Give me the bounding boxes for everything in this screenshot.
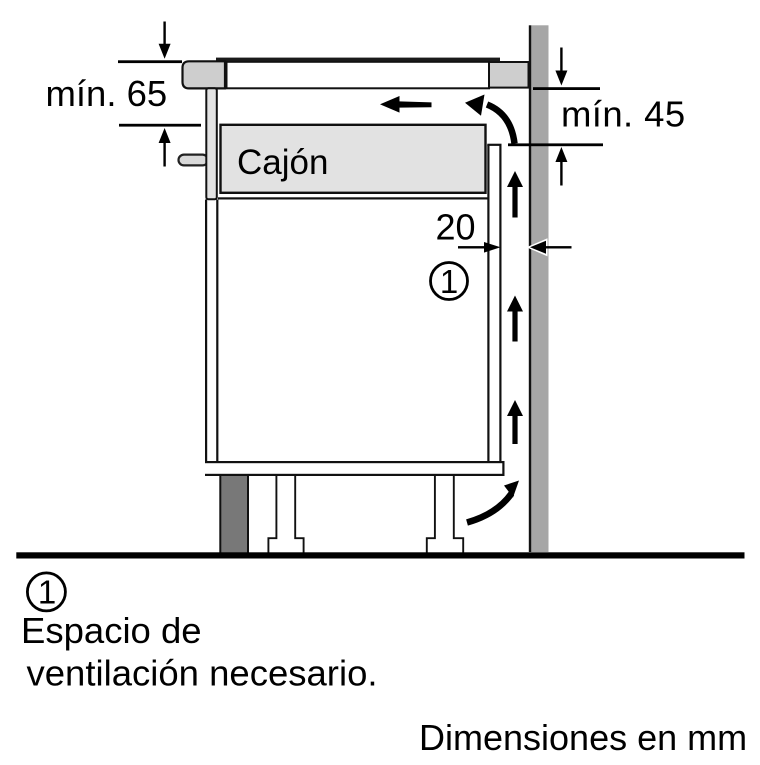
- svg-text:Dimensiones en mm: Dimensiones en mm: [419, 717, 747, 758]
- svg-text:1: 1: [440, 263, 458, 300]
- svg-text:1: 1: [38, 574, 56, 611]
- svg-text:20: 20: [436, 207, 476, 248]
- svg-text:ventilación necesario.: ventilación necesario.: [27, 652, 378, 693]
- svg-text:Espacio de: Espacio de: [21, 610, 202, 651]
- svg-text:Cajón: Cajón: [237, 143, 328, 182]
- svg-text:mín. 45: mín. 45: [561, 94, 686, 135]
- svg-text:mín. 65: mín. 65: [46, 73, 168, 114]
